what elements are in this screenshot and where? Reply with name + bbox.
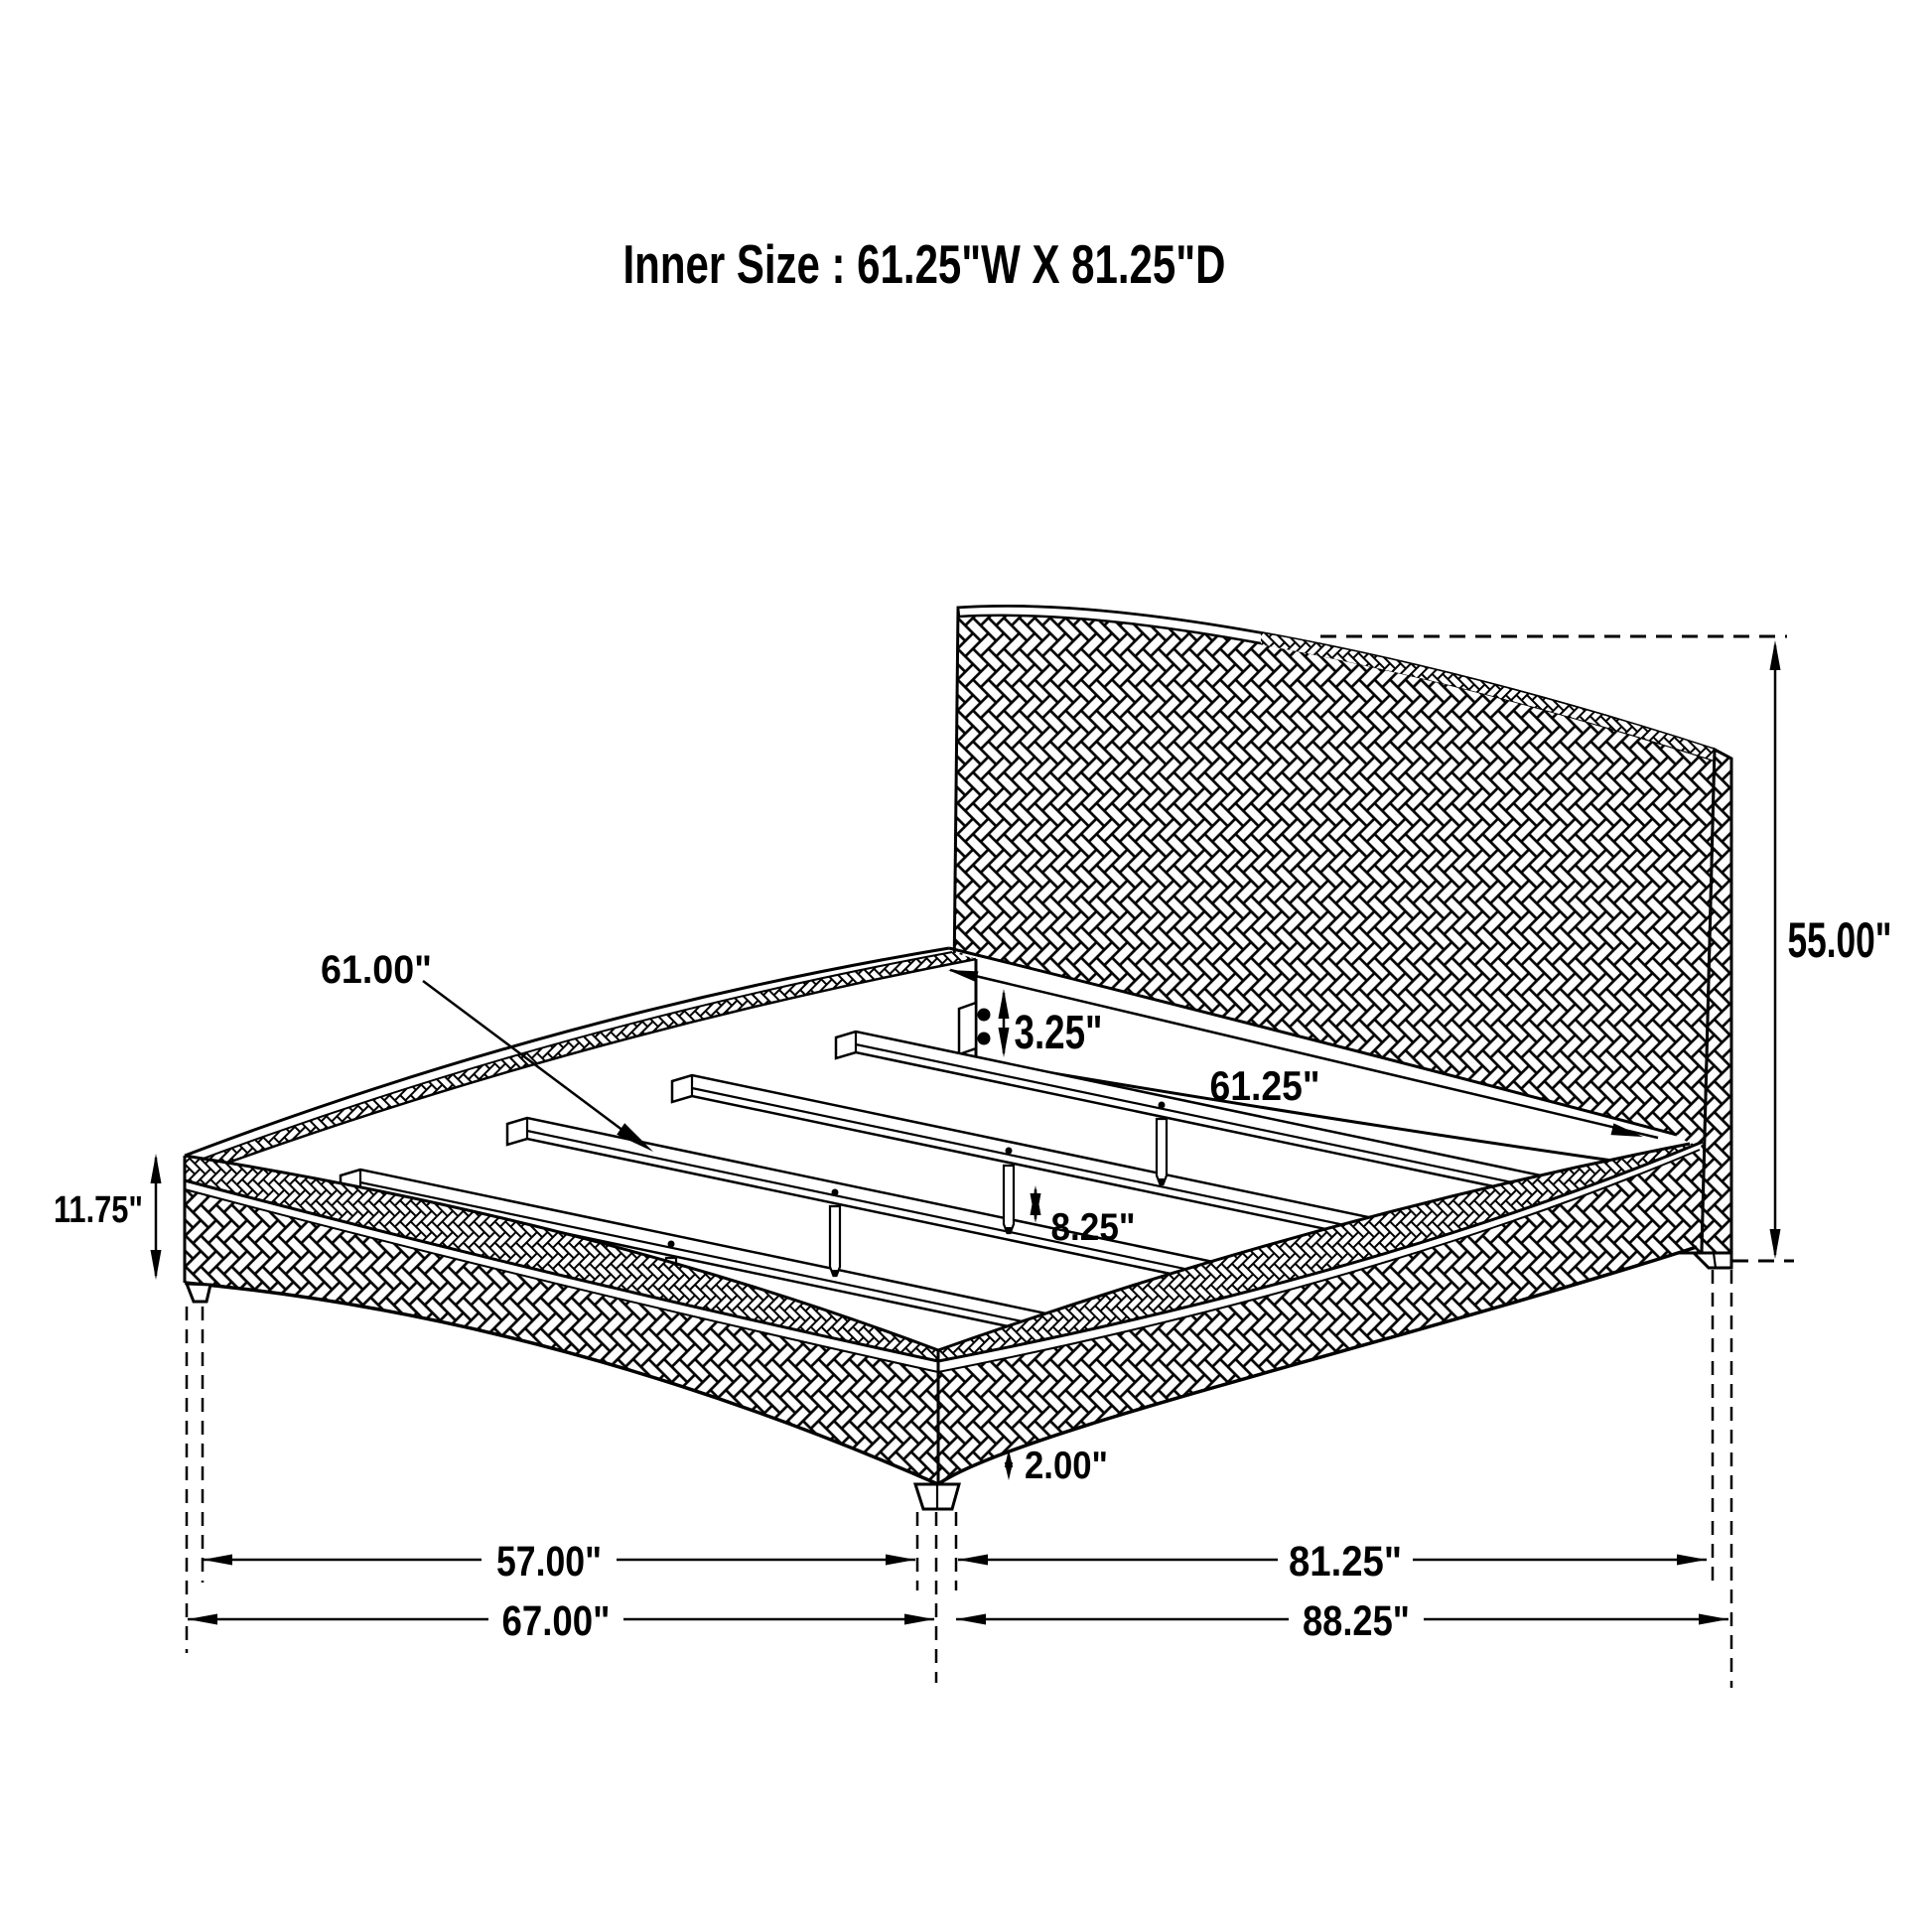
svg-text:81.25": 81.25" — [1289, 1538, 1402, 1586]
svg-text:61.00": 61.00" — [321, 948, 432, 992]
svg-text:11.75": 11.75" — [54, 1189, 143, 1231]
svg-text:57.00": 57.00" — [496, 1538, 602, 1586]
svg-text:88.25": 88.25" — [1303, 1597, 1410, 1645]
svg-text:8.25": 8.25" — [1051, 1206, 1136, 1249]
svg-text:61.25": 61.25" — [1210, 1062, 1320, 1109]
svg-text:3.25": 3.25" — [1015, 1007, 1103, 1059]
svg-text:2.00": 2.00" — [1025, 1445, 1108, 1487]
svg-text:67.00": 67.00" — [502, 1597, 611, 1645]
svg-text:55.00": 55.00" — [1788, 912, 1892, 968]
svg-text:Inner Size : 61.25"W X 81.25"D: Inner Size : 61.25"W X 81.25"D — [623, 233, 1226, 295]
